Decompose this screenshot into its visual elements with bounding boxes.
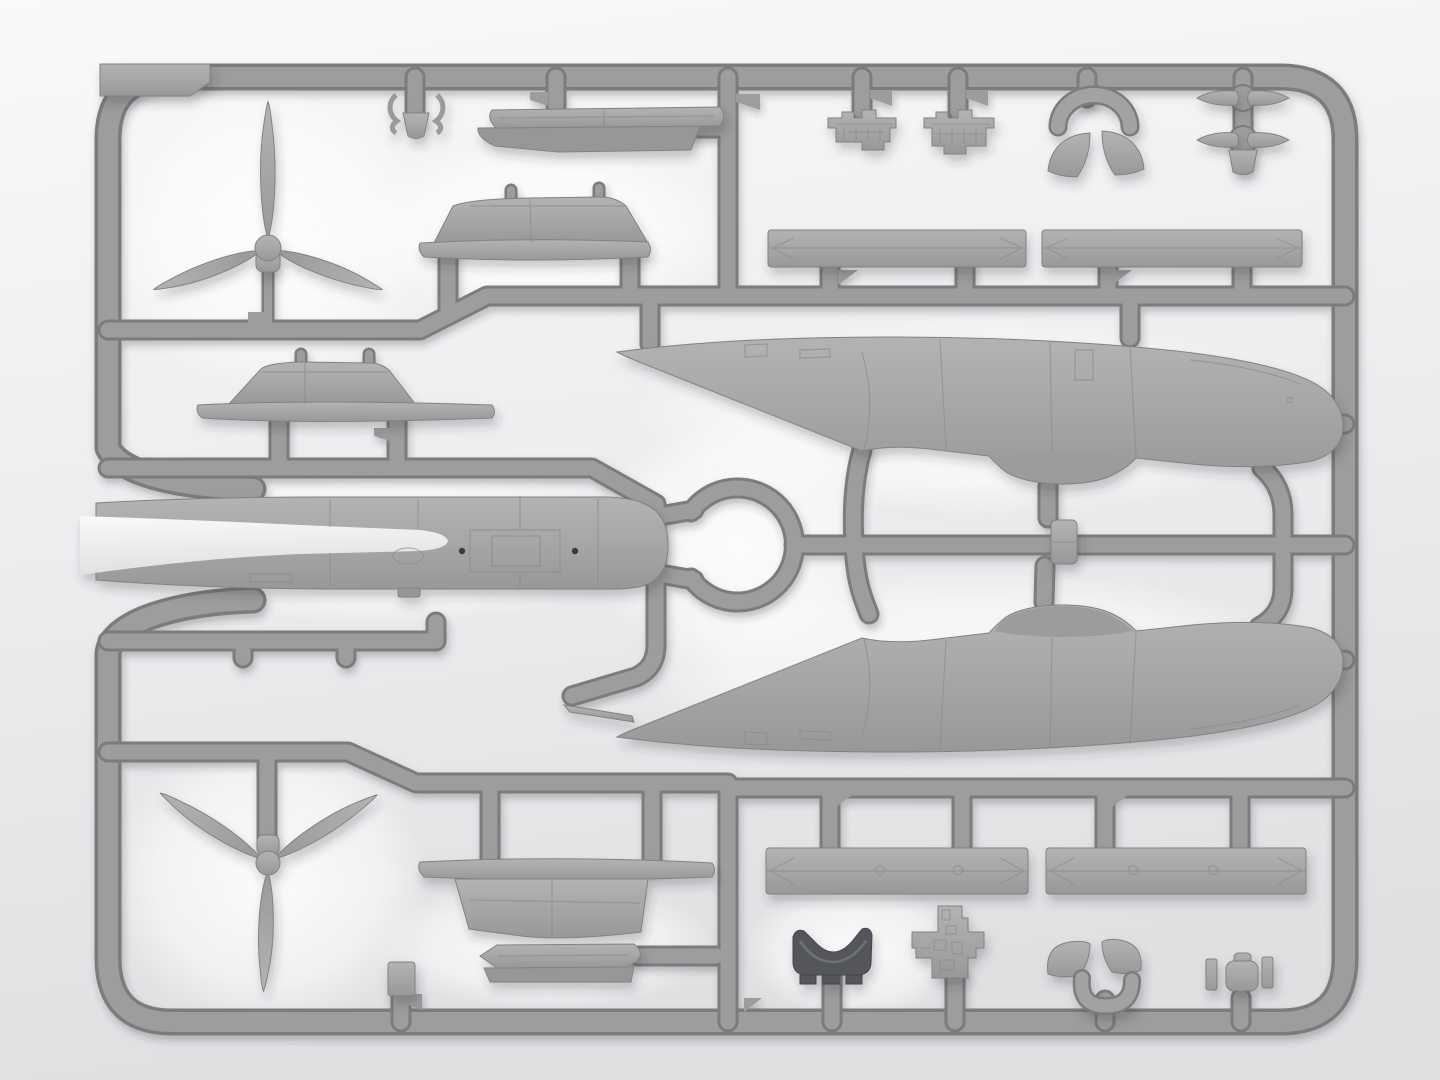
flat-stepped-part-bottom	[480, 944, 640, 982]
twin-boom-center-section	[80, 497, 668, 597]
propeller-hub	[255, 235, 281, 261]
flat-stepped-part-top	[478, 107, 724, 152]
spar-bar-1	[768, 230, 1026, 267]
corner-label-tab	[100, 64, 210, 96]
spar-bar-3	[766, 848, 1028, 894]
t-fitting	[1206, 953, 1273, 991]
small-mount-block	[1051, 520, 1077, 564]
locating-hole	[572, 548, 578, 554]
locating-hole	[459, 548, 465, 554]
spar-bar-4	[1046, 848, 1306, 894]
sprue-photo	[0, 0, 1440, 1080]
spar-bar-2	[1042, 230, 1302, 267]
small-square-block	[388, 962, 415, 996]
propeller-hub	[256, 851, 280, 875]
sprue-photo-stage	[0, 0, 1440, 1080]
wing-fairing-top	[419, 197, 650, 260]
